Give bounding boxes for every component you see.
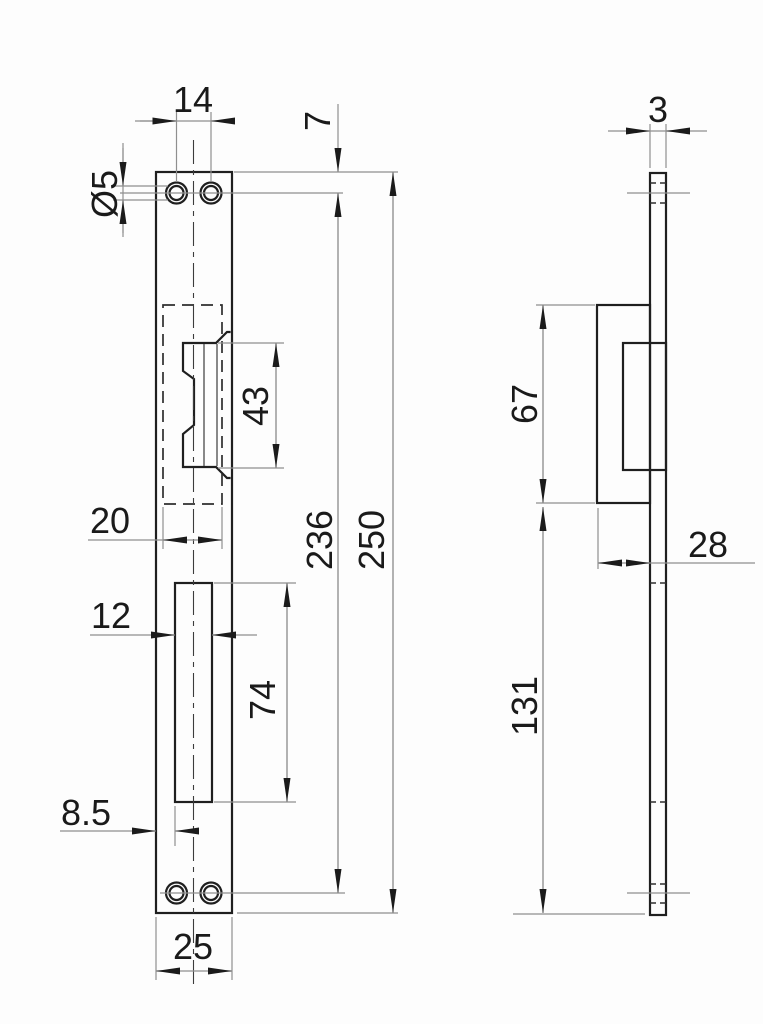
- side-dimension-labels: 3 67 28 131: [504, 89, 728, 736]
- dim-label-edge-to-slot: 8.5: [61, 792, 111, 833]
- side-dimension-lines: [513, 124, 755, 914]
- dim-label-box-to-bottom: 131: [504, 676, 545, 736]
- front-view: 14 7 Ø5 43 20 236 250 12 74 8.5 25: [60, 79, 398, 987]
- dim-label-keeper-opening-height: 43: [235, 386, 276, 426]
- dim-label-keeper-box-depth: 28: [688, 524, 728, 565]
- dim-label-plate-thickness: 3: [648, 89, 668, 130]
- dim-label-keeper-box-height: 67: [504, 384, 545, 424]
- side-plate-outline: [597, 173, 666, 915]
- side-view: 3 67 28 131: [504, 89, 755, 915]
- dim-label-slot-width: 12: [91, 595, 131, 636]
- side-hidden-lines: [650, 183, 666, 903]
- technical-drawing: 14 7 Ø5 43 20 236 250 12 74 8.5 25: [0, 0, 763, 1024]
- dim-label-cutout-width: 20: [90, 500, 130, 541]
- dim-label-overall-length: 250: [351, 510, 392, 570]
- side-centerlines: [627, 193, 690, 893]
- dim-label-hole-diameter: Ø5: [84, 170, 125, 218]
- dimension-lines: [60, 104, 398, 980]
- dim-label-hole-spacing: 14: [173, 79, 213, 120]
- hidden-cutout-outline: [163, 305, 222, 504]
- dim-label-hole-span: 236: [299, 510, 340, 570]
- keeper-pocket: [623, 343, 666, 470]
- drawing-canvas: 14 7 Ø5 43 20 236 250 12 74 8.5 25: [0, 0, 763, 1024]
- dim-label-top-edge-to-hole: 7: [297, 111, 338, 131]
- dim-label-slot-height: 74: [242, 680, 283, 720]
- dim-label-plate-width: 25: [173, 926, 213, 967]
- dimension-labels: 14 7 Ø5 43 20 236 250 12 74 8.5 25: [61, 79, 392, 967]
